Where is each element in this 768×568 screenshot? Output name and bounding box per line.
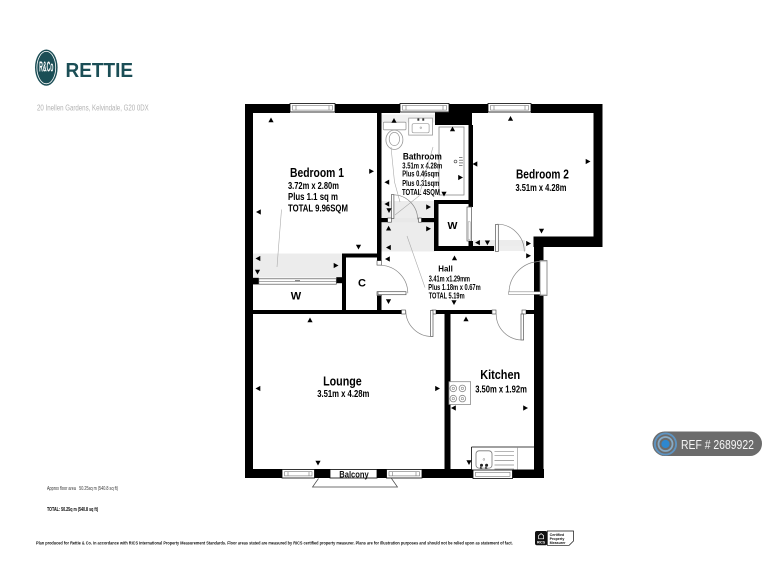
- svg-text:20 Inellen Gardens, Kelvindale: 20 Inellen Gardens, Kelvindale, G20 0DX: [37, 104, 149, 113]
- svg-text:C: C: [358, 277, 366, 289]
- svg-text:3.51m x 4.28m: 3.51m x 4.28m: [516, 182, 567, 193]
- svg-text:W: W: [448, 220, 458, 232]
- svg-text:RETTIE: RETTIE: [66, 60, 134, 83]
- svg-text:RICS: RICS: [537, 541, 546, 545]
- svg-text:Plus 1.1 sq m: Plus 1.1 sq m: [288, 191, 338, 202]
- svg-text:R&Co: R&Co: [39, 60, 53, 76]
- svg-text:TOTAL 5.19m: TOTAL 5.19m: [429, 293, 465, 301]
- svg-text:W: W: [291, 291, 302, 303]
- svg-text:Approx floor area 50.25sq m: Approx floor area 50.25sq m (540.8 sq ft…: [47, 485, 118, 491]
- svg-text:Plus 1.18m x 0.67m: Plus 1.18m x 0.67m: [428, 284, 480, 292]
- svg-text:3.41m x1.29mm: 3.41m x1.29mm: [429, 276, 470, 284]
- svg-text:Bedroom 1: Bedroom 1: [290, 166, 344, 180]
- svg-text:3.72m x 2.80m: 3.72m x 2.80m: [288, 180, 339, 191]
- svg-text:3.50m x 1.92m: 3.50m x 1.92m: [475, 384, 527, 395]
- svg-text:TOTAL 9.96SQM: TOTAL 9.96SQM: [288, 202, 348, 213]
- svg-text:Measurer: Measurer: [550, 541, 567, 545]
- svg-text:3.51m x 4.28m: 3.51m x 4.28m: [317, 388, 369, 399]
- svg-text:Lounge: Lounge: [323, 375, 362, 389]
- svg-text:REF # 2689922: REF # 2689922: [681, 439, 754, 452]
- svg-text:Hall: Hall: [438, 264, 452, 273]
- svg-text:Bedroom 2: Bedroom 2: [516, 168, 569, 182]
- svg-text:Balcony: Balcony: [339, 469, 369, 480]
- svg-text:TOTAL: 50.25q m (540.8 sq ft): TOTAL: 50.25q m (540.8 sq ft): [47, 506, 98, 512]
- svg-text:Plan produced for Rettie & Co.: Plan produced for Rettie & Co. in accord…: [36, 540, 513, 545]
- svg-text:Kitchen: Kitchen: [480, 368, 520, 382]
